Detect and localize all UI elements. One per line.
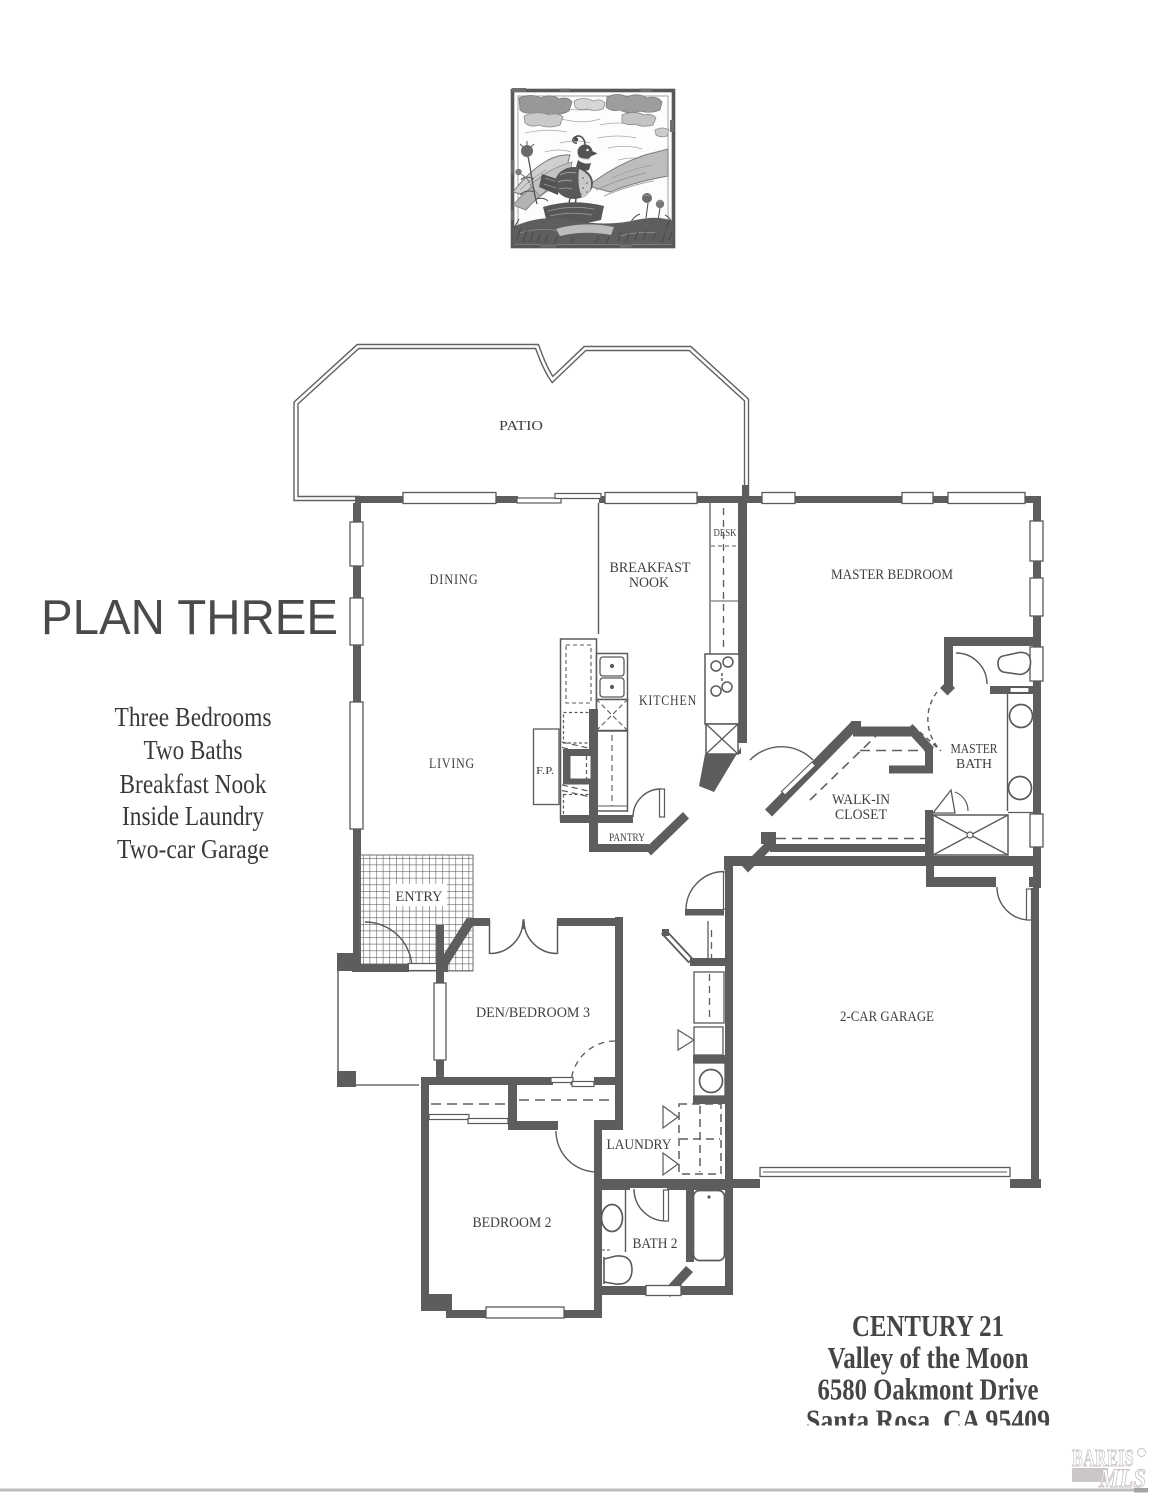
svg-text:F.P.: F.P. [536, 766, 554, 777]
svg-text:BREAKFAST: BREAKFAST [610, 560, 691, 576]
svg-text:Valley of the Moon: Valley of the Moon [828, 1340, 1029, 1375]
svg-text:CLOSET: CLOSET [835, 807, 887, 823]
svg-text:WALK-IN: WALK-IN [832, 792, 890, 808]
svg-text:BATH: BATH [956, 756, 992, 771]
svg-text:Breakfast Nook: Breakfast Nook [120, 768, 267, 799]
svg-text:LIVING: LIVING [429, 756, 475, 772]
svg-text:Three Bedrooms: Three Bedrooms [115, 701, 272, 732]
svg-text:MASTER BEDROOM: MASTER BEDROOM [831, 567, 953, 583]
svg-text:CENTURY 21: CENTURY 21 [852, 1308, 1004, 1343]
svg-text:2-CAR GARAGE: 2-CAR GARAGE [840, 1009, 934, 1025]
svg-text:DINING: DINING [430, 572, 479, 588]
svg-text:BEDROOM 2: BEDROOM 2 [473, 1215, 552, 1231]
svg-text:ENTRY: ENTRY [396, 889, 444, 905]
svg-text:NOOK: NOOK [629, 575, 670, 591]
svg-text:Two Baths: Two Baths [144, 734, 243, 765]
svg-text:6580 Oakmont Drive: 6580 Oakmont Drive [818, 1372, 1039, 1407]
svg-text:Two-car Garage: Two-car Garage [117, 833, 269, 864]
svg-text:PANTRY: PANTRY [609, 832, 646, 844]
svg-text:Inside Laundry: Inside Laundry [122, 800, 264, 831]
svg-text:KITCHEN: KITCHEN [639, 693, 697, 709]
svg-text:DESK: DESK [714, 528, 738, 539]
svg-text:MASTER: MASTER [951, 741, 998, 756]
svg-text:PATIO: PATIO [499, 418, 543, 433]
svg-text:BATH 2: BATH 2 [633, 1236, 678, 1252]
svg-text:DEN/BEDROOM 3: DEN/BEDROOM 3 [476, 1005, 590, 1021]
svg-text:PLAN THREE: PLAN THREE [41, 591, 338, 645]
svg-text:LAUNDRY: LAUNDRY [607, 1137, 672, 1153]
